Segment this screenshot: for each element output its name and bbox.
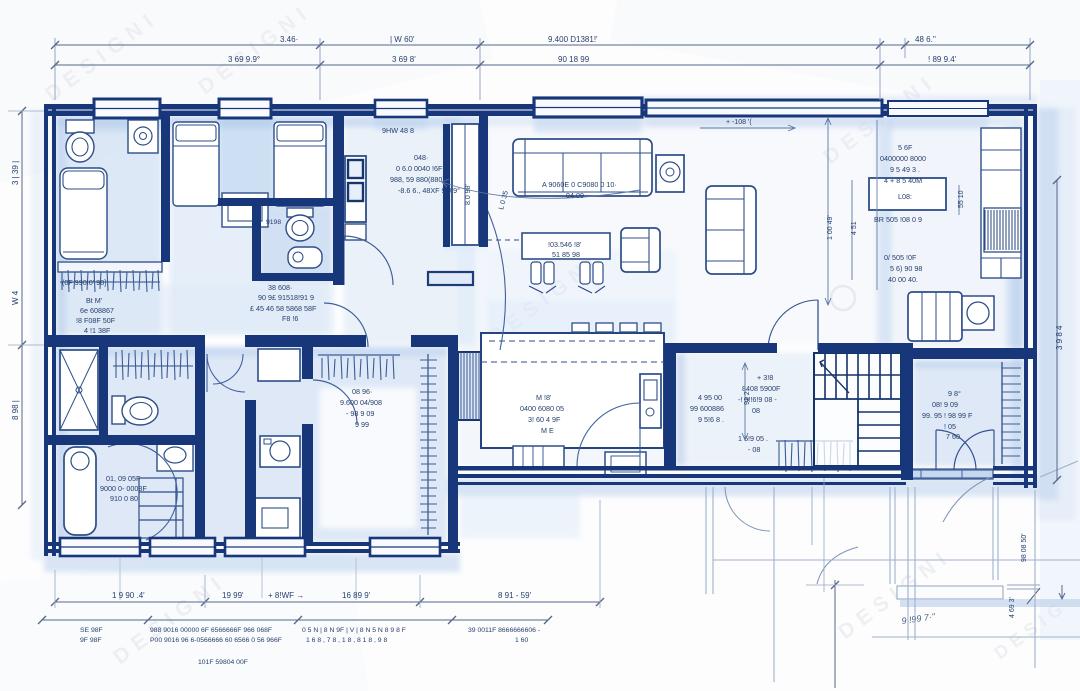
svg-text:1 60: 1 60 bbox=[515, 637, 528, 644]
svg-text:9000 0- 0008F: 9000 0- 0008F bbox=[100, 484, 147, 493]
svg-text:1 9 90 .4': 1 9 90 .4' bbox=[112, 591, 145, 600]
svg-text:90 9£ 91518!91 9: 90 9£ 91518!91 9 bbox=[258, 293, 314, 302]
svg-text:SE 98F: SE 98F bbox=[80, 627, 103, 634]
svg-text:+ 8!WF →: + 8!WF → bbox=[268, 591, 304, 600]
svg-text:55 10: 55 10 bbox=[958, 190, 965, 208]
svg-text:9 5 49 3 .: 9 5 49 3 . bbox=[890, 165, 920, 174]
svg-text:- 08: - 08 bbox=[748, 445, 760, 454]
svg-text:+ 3!8: + 3!8 bbox=[757, 373, 773, 382]
svg-text:3 9 8 4: 3 9 8 4 bbox=[1055, 325, 1064, 350]
svg-text:92 2·: 92 2· bbox=[744, 389, 751, 405]
svg-text:40 00 40.: 40 00 40. bbox=[888, 275, 918, 284]
svg-text:9.400 D1381!': 9.400 D1381!' bbox=[548, 35, 598, 44]
svg-text:1 5!9 05 .: 1 5!9 05 . bbox=[738, 434, 768, 443]
svg-text:-8.6 6., 48XF 9 J 9°: -8.6 6., 48XF 9 J 9° bbox=[398, 186, 460, 195]
svg-text:0 5 N | 8 N 9F | V | 8 N 5 N 8: 0 5 N | 8 N 9F | V | 8 N 5 N 8 9 8 F bbox=[302, 627, 406, 634]
svg-text:4 69 3': 4 69 3' bbox=[1009, 597, 1016, 618]
svg-text:1 00 49': 1 00 49' bbox=[827, 215, 834, 240]
svg-text:38 608·: 38 608· bbox=[268, 283, 292, 292]
svg-text:94 09: 94 09 bbox=[566, 191, 584, 200]
svg-text:16 89 9': 16 89 9' bbox=[342, 591, 371, 600]
svg-text:9.600 04/908: 9.600 04/908 bbox=[340, 398, 382, 407]
svg-text:9 5!6 8 .: 9 5!6 8 . bbox=[698, 415, 724, 424]
svg-text:048·: 048· bbox=[414, 153, 428, 162]
svg-text:4 !1 38F: 4 !1 38F bbox=[84, 326, 111, 335]
svg-text:39 0011F 8666666606 -: 39 0011F 8666666606 - bbox=[468, 627, 540, 634]
svg-text:!03.546 !8': !03.546 !8' bbox=[548, 240, 582, 249]
svg-text:0/ 505 !0F: 0/ 505 !0F bbox=[884, 253, 917, 262]
svg-text:L08:: L08: bbox=[898, 192, 912, 201]
svg-text:8.0 98': 8.0 98' bbox=[465, 184, 472, 205]
svg-text:3 | 39 |: 3 | 39 | bbox=[11, 161, 20, 185]
svg-text:9F 98F: 9F 98F bbox=[80, 637, 102, 644]
svg-text:01, 09 05F: 01, 09 05F bbox=[106, 474, 141, 483]
svg-text:9198: 9198 bbox=[266, 219, 281, 226]
svg-text:P00 9016 96 6-0566666 60 6566: P00 9016 96 6-0566666 60 6566 0 56 966F bbox=[150, 637, 282, 644]
svg-text:90 18 99: 90 18 99 bbox=[558, 55, 590, 64]
svg-text:98 08 50': 98 08 50' bbox=[1021, 533, 1028, 562]
svg-text:5 6) 90 98: 5 6) 90 98 bbox=[890, 264, 922, 273]
svg-text:99. 95 ! 98 99 F: 99. 95 ! 98 99 F bbox=[922, 411, 973, 420]
svg-text:- 98 9 09: - 98 9 09 bbox=[346, 409, 374, 418]
svg-text:W 4: W 4 bbox=[11, 290, 20, 305]
svg-text:Bt M': Bt M' bbox=[86, 296, 103, 305]
svg-text:M E: M E bbox=[541, 426, 554, 435]
svg-text:8 91 - 59': 8 91 - 59' bbox=[498, 591, 532, 600]
svg-text:BR 505 !08 0 9: BR 505 !08 0 9 bbox=[874, 215, 922, 224]
svg-text:988 9016 00000 6F 6566666F 966: 988 9016 00000 6F 6566666F 966 068F bbox=[150, 627, 272, 634]
svg-text:3.46·: 3.46· bbox=[280, 35, 298, 44]
svg-text:(0F 990!0' 98]: (0F 990!0' 98] bbox=[62, 278, 106, 287]
svg-text:9 8°: 9 8° bbox=[948, 389, 961, 398]
svg-text:7 60: 7 60 bbox=[946, 432, 960, 441]
svg-text:8 98 |: 8 98 | bbox=[11, 400, 20, 420]
svg-text:988, 59 880(880): 988, 59 880(880) bbox=[390, 175, 445, 184]
svg-text:+ -108 '(: + -108 '( bbox=[726, 119, 752, 126]
svg-text:!8 F08F 50F: !8 F08F 50F bbox=[76, 316, 116, 325]
svg-text:4 51: 4 51 bbox=[851, 221, 858, 235]
svg-text:19 99': 19 99' bbox=[222, 591, 244, 600]
svg-text:| W 60': | W 60' bbox=[390, 35, 415, 44]
svg-text:0400000 8000: 0400000 8000 bbox=[880, 154, 926, 163]
svg-text:9 99: 9 99 bbox=[355, 420, 369, 429]
svg-text:6e 608867: 6e 608867 bbox=[80, 306, 114, 315]
svg-text:4 + 8 5 40M: 4 + 8 5 40M bbox=[884, 176, 922, 185]
svg-text:0400 6080 05: 0400 6080 05 bbox=[520, 404, 564, 413]
svg-text:£ 45 46 58 5868 58F: £ 45 46 58 5868 58F bbox=[250, 304, 317, 313]
svg-text:910 0 80: 910 0 80 bbox=[110, 494, 138, 503]
svg-text:08 96·: 08 96· bbox=[352, 387, 372, 396]
svg-text:48 6.'': 48 6.'' bbox=[915, 35, 936, 44]
svg-text:99 600886: 99 600886 bbox=[690, 404, 724, 413]
svg-text:3! 60 4 9F: 3! 60 4 9F bbox=[528, 415, 561, 424]
svg-text:5 6F: 5 6F bbox=[898, 143, 913, 152]
svg-text:4 95 00: 4 95 00 bbox=[698, 393, 722, 402]
svg-text:F8 !6: F8 !6 bbox=[282, 314, 298, 323]
svg-text:101F 59804 00F: 101F 59804 00F bbox=[198, 659, 248, 666]
svg-text:1 6 8 , 7 8 , 1 8 , 8 1 8 , 9: 1 6 8 , 7 8 , 1 8 , 8 1 8 , 9 8 bbox=[306, 637, 387, 644]
svg-text:A 9060E 0 C9080 0 10·: A 9060E 0 C9080 0 10· bbox=[542, 180, 617, 189]
svg-text:M !8': M !8' bbox=[536, 393, 552, 402]
svg-text:! 89 9.4': ! 89 9.4' bbox=[928, 55, 957, 64]
svg-text:9HW 48 8: 9HW 48 8 bbox=[382, 126, 414, 135]
svg-text:08: 08 bbox=[752, 406, 760, 415]
svg-text:3 69 9.9°: 3 69 9.9° bbox=[228, 55, 260, 64]
svg-text:3 69 8': 3 69 8' bbox=[392, 55, 416, 64]
svg-text:! 05: ! 05 bbox=[944, 422, 956, 431]
svg-text:0 6.0 0040 !6F: 0 6.0 0040 !6F bbox=[396, 164, 443, 173]
svg-text:51 85 98: 51 85 98 bbox=[552, 250, 580, 259]
svg-text:08! 9 09: 08! 9 09 bbox=[932, 400, 958, 409]
